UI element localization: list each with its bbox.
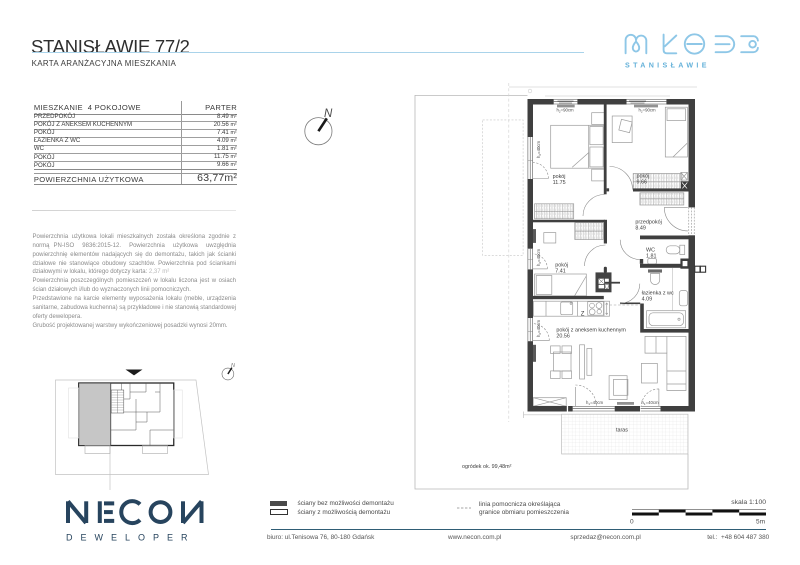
svg-text:h2=90cm: h2=90cm	[639, 108, 656, 114]
svg-text:h1=40cm: h1=40cm	[642, 400, 659, 406]
svg-text:N: N	[231, 363, 235, 369]
svg-text:5m: 5m	[756, 519, 765, 526]
svg-text:ogródek ok. 99,48m²: ogródek ok. 99,48m²	[462, 464, 512, 470]
svg-text:1.81: 1.81	[646, 254, 657, 260]
svg-text:4.09: 4.09	[642, 297, 653, 303]
svg-text:DEWELOPER: DEWELOPER	[66, 533, 196, 543]
svg-text:7.41: 7.41	[555, 269, 566, 275]
svg-text:0: 0	[630, 519, 634, 526]
svg-text:N: N	[324, 108, 333, 120]
svg-text:taras: taras	[616, 428, 628, 434]
svg-text:STANISŁAWIE: STANISŁAWIE	[625, 61, 710, 69]
svg-text:9.66: 9.66	[637, 180, 648, 186]
svg-text:h2=90cm: h2=90cm	[557, 108, 574, 114]
svg-text:20.56: 20.56	[556, 334, 570, 340]
svg-text:h2=40cm: h2=40cm	[536, 320, 542, 337]
svg-text:h2=40cm: h2=40cm	[536, 141, 542, 158]
svg-text:Z: Z	[581, 312, 585, 318]
svg-text:h2=40cm: h2=40cm	[536, 249, 542, 266]
svg-text:8.49: 8.49	[635, 226, 646, 232]
svg-text:h1=40cm: h1=40cm	[586, 400, 603, 406]
svg-text:11.75: 11.75	[553, 180, 566, 186]
